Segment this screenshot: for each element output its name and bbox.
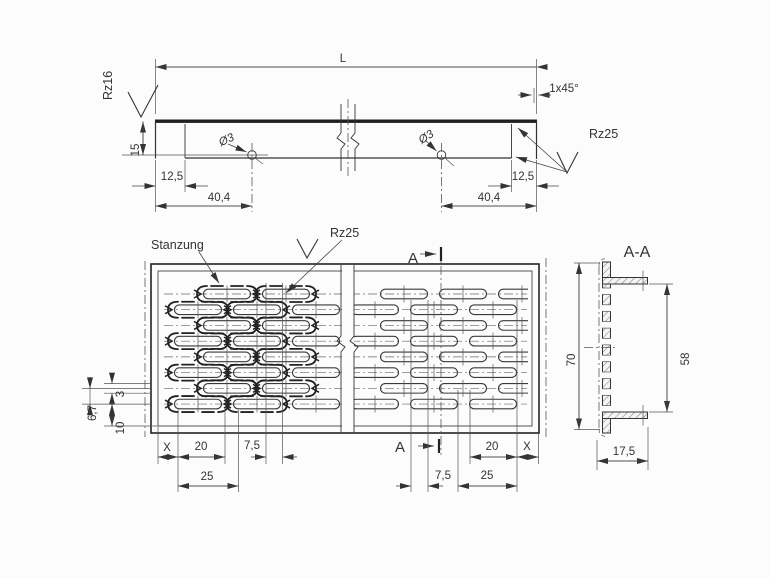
- break-line: [337, 104, 345, 171]
- dim-20-right: 20: [470, 441, 517, 457]
- web-slot-gap: [602, 322, 612, 329]
- section-letter-bottom: A: [395, 439, 405, 456]
- section-view: A-A 70 58 17,5: [566, 244, 692, 470]
- dim-chamfer: 1x45°: [518, 83, 579, 103]
- dim-70: 70: [566, 263, 600, 430]
- dim-25-right: 25: [458, 470, 517, 486]
- dim-15: 15: [130, 122, 143, 157]
- stanzung-callout: Stanzung: [151, 238, 219, 283]
- dim-label-404-right: 40,4: [478, 192, 501, 204]
- dim-label-20-right: 20: [486, 441, 499, 453]
- dim-label-L: L: [340, 53, 347, 65]
- dim-3: 3: [112, 373, 127, 402]
- section-title: A-A: [624, 244, 651, 261]
- surface-finish-rz25-top: Rz25: [516, 127, 618, 173]
- technical-drawing-page: L 15 12,5 40,4 12,5: [0, 0, 770, 578]
- dim-label-20-left: 20: [195, 441, 208, 453]
- dim-404-right: 40,4: [442, 192, 537, 206]
- top-view: L 15 12,5 40,4 12,5: [101, 53, 618, 212]
- rz25-top-label: Rz25: [589, 127, 618, 141]
- dim-125-right: 12,5: [488, 160, 559, 212]
- dim-75-left: 7,5: [244, 440, 297, 457]
- dim-label-chamfer: 1x45°: [549, 83, 579, 95]
- plan-view: Stanzung Rz25 A A: [82, 226, 546, 492]
- hole-right-label: Ø3: [416, 128, 437, 147]
- section-bottom-flange: [603, 412, 648, 419]
- dim-label-x-left: X: [163, 442, 171, 454]
- dim-x-left: X: [158, 442, 178, 457]
- hole-callout-left: Ø3: [216, 131, 263, 164]
- dim-label-x-right: X: [523, 441, 531, 453]
- web-slot-gap: [602, 406, 612, 413]
- dim-label-70: 70: [566, 354, 578, 367]
- dim-20-left: 20: [178, 441, 225, 457]
- dim-label-125-right: 12,5: [512, 171, 534, 183]
- dim-label-25-left: 25: [201, 471, 214, 483]
- dim-x-right: X: [517, 441, 539, 457]
- dim-label-67: 6,7: [87, 405, 99, 421]
- surface-symbol-icon: [297, 239, 318, 258]
- dim-67: 6,7: [87, 377, 99, 421]
- slot-pattern: [164, 286, 546, 413]
- dim-label-3: 3: [115, 391, 127, 397]
- dim-length-L: L: [156, 53, 537, 114]
- web-slot-gap: [602, 389, 612, 396]
- dim-label-25-right: 25: [481, 470, 494, 482]
- surface-symbol-icon: [128, 85, 158, 117]
- section-letter-top: A: [408, 250, 418, 267]
- rz16-label: Rz16: [101, 71, 115, 100]
- dim-label-75-left: 7,5: [244, 440, 260, 452]
- section-top-flange: [603, 278, 648, 285]
- dim-125-left: 12,5: [132, 160, 208, 212]
- dim-404-left: 40,4: [156, 192, 253, 206]
- technical-drawing: L 15 12,5 40,4 12,5: [0, 0, 770, 578]
- dim-58: 58: [649, 284, 692, 412]
- dim-75-right: 7,5: [396, 470, 451, 486]
- section-cut-line: A A: [395, 247, 441, 456]
- dim-25-left: 25: [178, 471, 239, 486]
- surface-finish-rz16: Rz16: [101, 71, 158, 117]
- break-line: [351, 104, 359, 171]
- stanzung-label: Stanzung: [151, 238, 204, 252]
- web-slot-gap: [602, 288, 612, 295]
- dim-10: 10: [112, 404, 127, 434]
- plate-top-surface: [155, 120, 537, 123]
- web-slot-gap: [602, 372, 612, 379]
- web-slot-gap: [602, 355, 612, 362]
- dim-label-175: 17,5: [613, 446, 635, 458]
- rz25-plan-label: Rz25: [330, 226, 359, 240]
- hole-callout-right: Ø3: [416, 128, 454, 166]
- web-slot-gap: [602, 305, 612, 312]
- dim-label-404-left: 40,4: [208, 192, 231, 204]
- dim-label-10: 10: [115, 422, 127, 435]
- dim-label-58: 58: [680, 353, 692, 366]
- web-slot-gap: [602, 338, 612, 345]
- dim-label-15: 15: [130, 144, 142, 157]
- dim-label-125-left: 12,5: [161, 171, 183, 183]
- dim-label-75-right: 7,5: [435, 470, 451, 482]
